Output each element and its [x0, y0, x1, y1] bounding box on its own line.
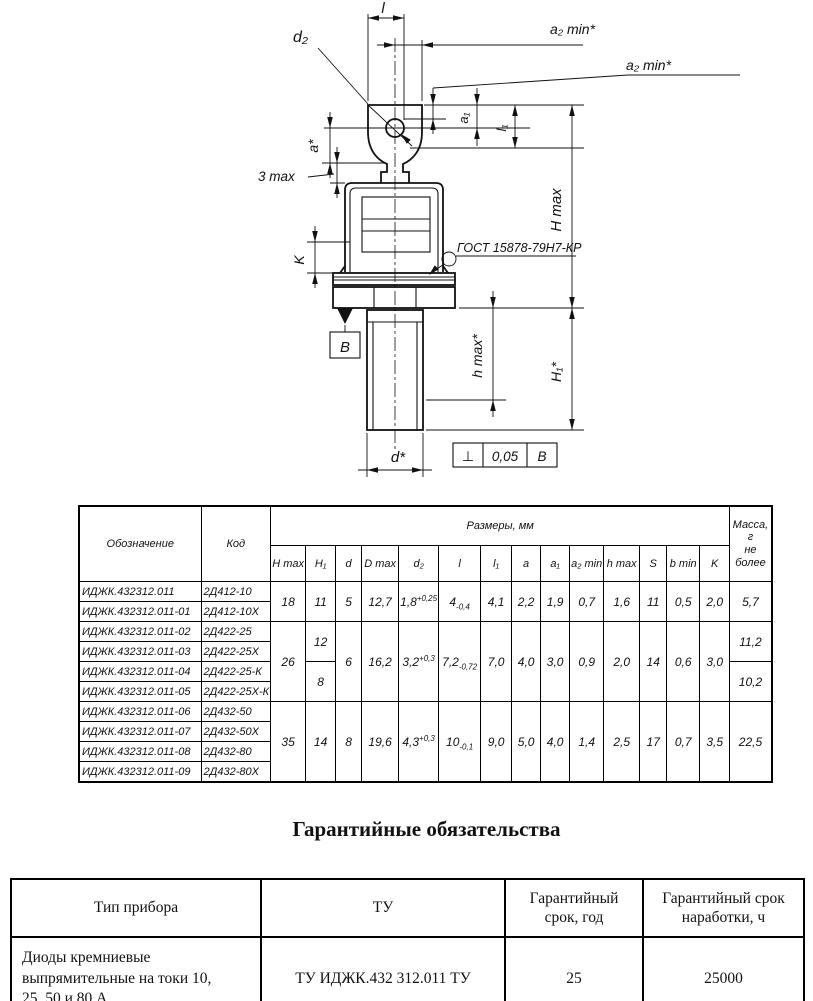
table-cell: 7,0 [481, 622, 512, 702]
table-cell: 3,2+0,3 [399, 622, 439, 702]
warranty-tu: ТУ ИДЖК.432 312.011 ТУ [261, 937, 505, 1001]
table-cell: 12 [306, 622, 336, 662]
table-cell: ИДЖК.432312.011-06 [79, 702, 201, 722]
table-cell: 4,1 [481, 582, 512, 622]
datum-triangle-icon [337, 308, 353, 324]
col-d: d₂ [399, 546, 439, 582]
table-cell: 12,7 [362, 582, 399, 622]
table-cell: ИДЖК.432312.011-03 [79, 642, 201, 662]
dim-label-h-max-star: h max* [469, 334, 485, 378]
table-cell: 2Д412-10 [201, 582, 271, 602]
table-cell: 2Д422-25 [201, 622, 271, 642]
table-cell: 16,2 [362, 622, 399, 702]
col-designation: Обозначение [79, 506, 201, 582]
dims-header-row: ОбозначениеКодРазмеры, ммМасса, г не бол… [79, 506, 772, 546]
table-cell: 0,7 [570, 582, 604, 622]
table-row: ИДЖК.432312.011-062Д432-503514819,64,3+0… [79, 702, 772, 722]
table-cell: 4,0 [541, 702, 570, 783]
table-cell: 14 [640, 622, 667, 702]
dim-label-d-star: d* [391, 449, 406, 466]
col-k: K [700, 546, 730, 582]
table-cell: 17 [640, 702, 667, 783]
table-cell: 5,7 [730, 582, 772, 622]
col-h: H₁ [306, 546, 336, 582]
table-cell: 8 [336, 702, 362, 783]
table-cell: 1,4 [570, 702, 604, 783]
table-cell: 2,2 [512, 582, 541, 622]
warranty-table: Тип прибора ТУ Гарантийный срок, год Гар… [10, 878, 805, 1001]
table-cell: 3,0 [700, 622, 730, 702]
weld-gost-label: ГОСТ 15878-79Н7-КР [457, 241, 582, 255]
table-cell: 11 [306, 582, 336, 622]
tolerance-datum: В [537, 449, 546, 464]
table-cell: 0,7 [667, 702, 700, 783]
dimensions-table: ОбозначениеКодРазмеры, ммМасса, г не бол… [78, 505, 773, 783]
dim-label-k: K [291, 255, 307, 265]
warranty-header-row: Тип прибора ТУ Гарантийный срок, год Гар… [11, 879, 804, 937]
table-cell: 0,5 [667, 582, 700, 622]
col-sizes-group: Размеры, мм [271, 506, 730, 546]
table-cell: 2Д432-50Х [201, 722, 271, 742]
dim-label-h-max-total: H max [548, 188, 565, 232]
datum-b-label: В [340, 339, 350, 356]
dim-label-a-star: a* [305, 139, 321, 153]
warranty-device-type: Диоды кремниевые выпрямительные на токи … [11, 937, 261, 1001]
tolerance-frame: ⊥ 0,05 В [453, 443, 557, 467]
dim-label-d2: d₂ [293, 29, 308, 46]
table-cell: 4-0,4 [439, 582, 481, 622]
tolerance-value: 0,05 [492, 449, 519, 464]
perpendicularity-icon: ⊥ [462, 448, 474, 464]
table-cell: 19,6 [362, 702, 399, 783]
technical-drawing: В ⊥ 0,05 В l a₂ min* a₂ min* d₂ a₁ l₁ a*… [0, 0, 813, 500]
col-bmin: b min [667, 546, 700, 582]
table-cell: 8 [306, 662, 336, 702]
col-a: a₁ [541, 546, 570, 582]
warranty-operating-time: 25000 [643, 937, 804, 1001]
table-cell: 35 [271, 702, 306, 783]
warranty-col-operating-time: Гарантийный срок наработки, ч [643, 879, 804, 937]
table-cell: 3,0 [541, 622, 570, 702]
table-cell: 5,0 [512, 702, 541, 783]
table-cell: 2Д422-25Х-К [201, 682, 271, 702]
col-l: l [439, 546, 481, 582]
table-cell: 10-0,1 [439, 702, 481, 783]
table-cell: 2Д432-80 [201, 742, 271, 762]
table-row: ИДЖК.432312.011-022Д422-252612616,23,2+0… [79, 622, 772, 642]
dim-label-3-max: 3 max [258, 169, 296, 184]
table-cell: 3,5 [700, 702, 730, 783]
table-cell: 2Д412-10Х [201, 602, 271, 622]
table-cell: 2,5 [604, 702, 640, 783]
col-code: Код [201, 506, 271, 582]
table-cell: 2Д422-25Х [201, 642, 271, 662]
table-cell: ИДЖК.432312.011-01 [79, 602, 201, 622]
col-hmax: H max [271, 546, 306, 582]
table-cell: ИДЖК.432312.011-08 [79, 742, 201, 762]
table-cell: 11,2 [730, 622, 772, 662]
table-cell: 18 [271, 582, 306, 622]
table-cell: ИДЖК.432312.011 [79, 582, 201, 602]
table-cell: 1,8+0,25 [399, 582, 439, 622]
table-cell: 0,9 [570, 622, 604, 702]
table-cell: 1,6 [604, 582, 640, 622]
warranty-col-device-type: Тип прибора [11, 879, 261, 937]
table-cell: ИДЖК.432312.011-07 [79, 722, 201, 742]
col-amin: a₂ min [570, 546, 604, 582]
table-cell: ИДЖК.432312.011-04 [79, 662, 201, 682]
col-d: d [336, 546, 362, 582]
table-cell: 11 [640, 582, 667, 622]
table-row: ИДЖК.432312.0112Д412-101811512,71,8+0,25… [79, 582, 772, 602]
warranty-data-row: Диоды кремниевые выпрямительные на токи … [11, 937, 804, 1001]
col-l: l₁ [481, 546, 512, 582]
table-cell: 22,5 [730, 702, 772, 783]
table-cell: 2,0 [700, 582, 730, 622]
table-cell: 0,6 [667, 622, 700, 702]
table-cell: 2,0 [604, 622, 640, 702]
table-cell: 26 [271, 622, 306, 702]
table-cell: ИДЖК.432312.011-05 [79, 682, 201, 702]
datum-b-flag: В [330, 308, 360, 358]
col-a: a [512, 546, 541, 582]
dim-label-l: l [381, 0, 385, 17]
table-cell: 7,2-0,72 [439, 622, 481, 702]
table-cell: 5 [336, 582, 362, 622]
table-cell: 14 [306, 702, 336, 783]
col-mass: Масса, г не более [730, 506, 772, 582]
table-cell: 4,3+0,3 [399, 702, 439, 783]
dim-label-a1: a₁ [456, 112, 471, 123]
warranty-col-tu: ТУ [261, 879, 505, 937]
dim-label-a2-min-side: a₂ min* [626, 57, 672, 73]
body-window [362, 197, 430, 252]
table-cell: 4,0 [512, 622, 541, 702]
table-cell: 2Д432-80Х [201, 762, 271, 783]
dim-label-a2-min-top: a₂ min* [550, 21, 596, 37]
table-cell: 2Д422-25-К [201, 662, 271, 682]
col-hmax: h max [604, 546, 640, 582]
table-cell: 1,9 [541, 582, 570, 622]
table-cell: ИДЖК.432312.011-02 [79, 622, 201, 642]
diode-body-outline [340, 183, 448, 273]
table-cell: 2Д432-50 [201, 702, 271, 722]
flange-hex-outline [333, 273, 455, 308]
datasheet-page: В ⊥ 0,05 В l a₂ min* a₂ min* d₂ a₁ l₁ a*… [0, 0, 813, 1001]
warranty-period: 25 [505, 937, 643, 1001]
col-s: S [640, 546, 667, 582]
warranty-heading: Гарантийные обязательства [20, 817, 813, 842]
weld-symbol-circle [442, 252, 456, 266]
table-cell: 6 [336, 622, 362, 702]
dim-label-h1-star: H₁* [548, 361, 564, 382]
dim-label-l1: l₁ [494, 125, 509, 132]
table-cell: ИДЖК.432312.011-09 [79, 762, 201, 783]
table-cell: 9,0 [481, 702, 512, 783]
col-dmax: D max [362, 546, 399, 582]
table-cell: 10,2 [730, 662, 772, 702]
warranty-col-period: Гарантийный срок, год [505, 879, 643, 937]
